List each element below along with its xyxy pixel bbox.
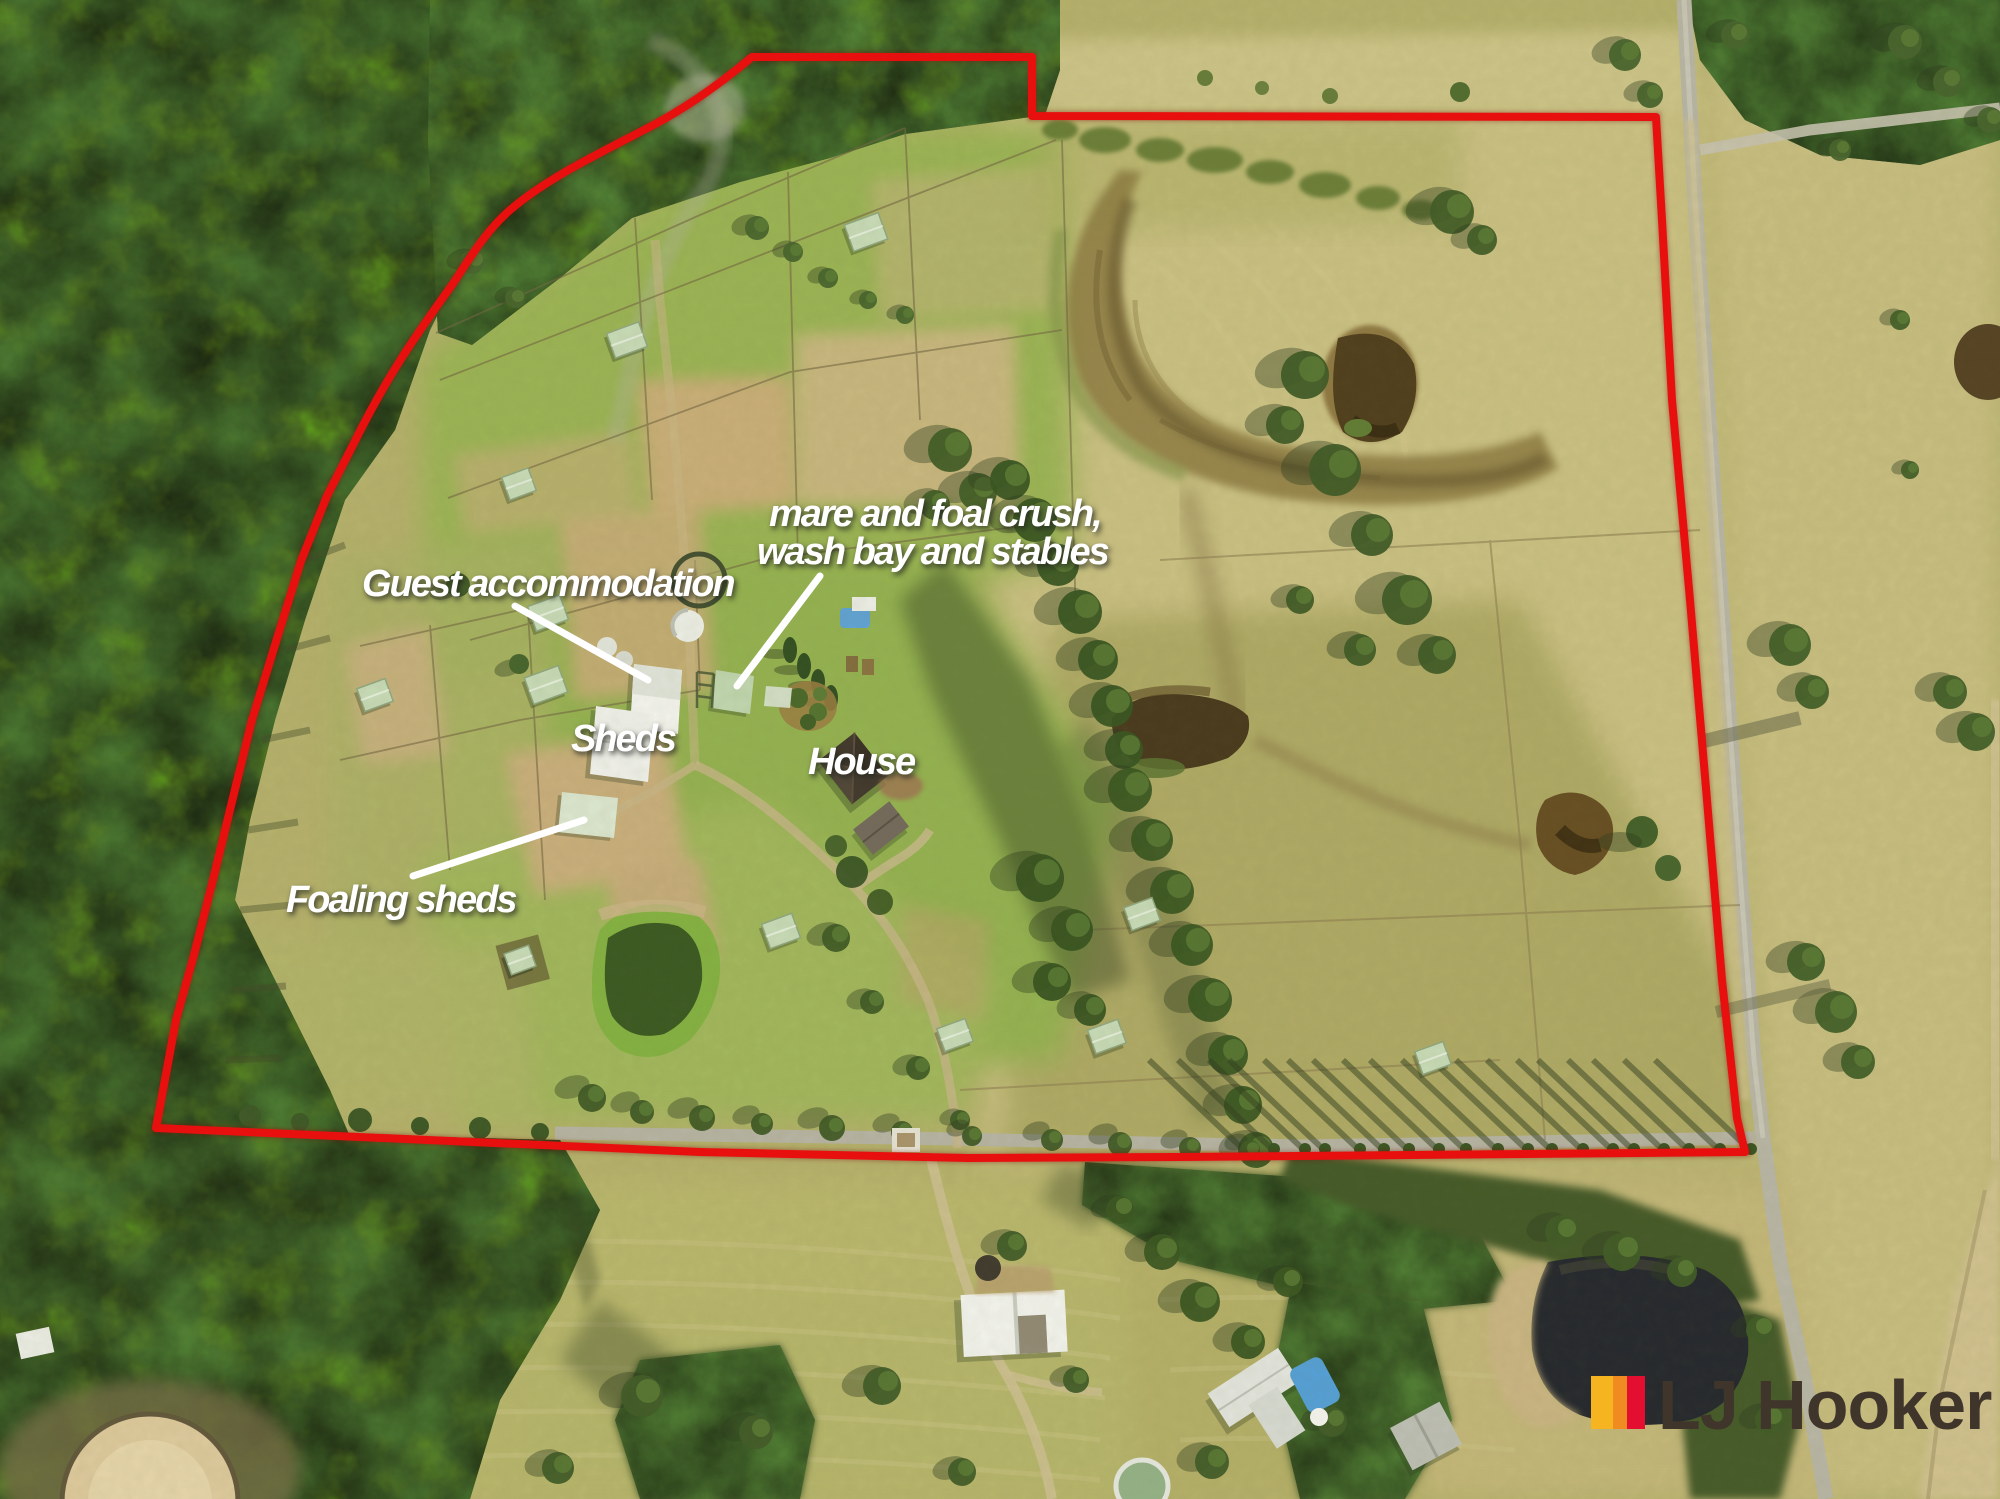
svg-text:Guest accommodation: Guest accommodation [362, 563, 734, 605]
svg-text:wash bay and stables: wash bay and stables [757, 531, 1109, 573]
svg-text:mare and foal crush,: mare and foal crush, [769, 493, 1101, 535]
svg-text:Sheds: Sheds [571, 718, 676, 760]
svg-text:LJ Hooker: LJ Hooker [1658, 1366, 1992, 1444]
svg-text:House: House [808, 741, 916, 783]
svg-text:Foaling sheds: Foaling sheds [286, 879, 516, 921]
